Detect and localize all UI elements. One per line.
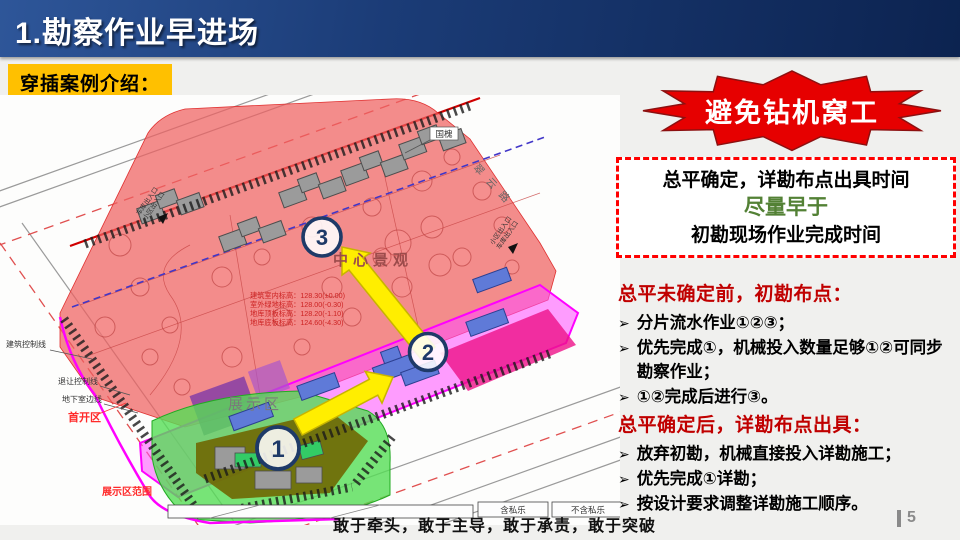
- display-area-label: 展示区: [228, 396, 282, 413]
- section2-bullet-1-text: 放弃初勘，机械直接投入详勘施工；: [637, 442, 901, 466]
- footer-slogan: 敢于牵头，敢于主导，敢于承责，敢于突破: [333, 512, 656, 536]
- svg-text:室外绿地标高：128.00(-0.30): 室外绿地标高：128.00(-0.30): [250, 300, 343, 309]
- svg-text:国槐: 国槐: [435, 129, 453, 139]
- section1-bullet-1-text: 分片流水作业①②③；: [637, 311, 794, 335]
- svg-text:1: 1: [271, 436, 284, 463]
- section2-heading: 总平确定后，详勘布点出具：: [618, 414, 958, 438]
- section1-bullet-1: ➢ 分片流水作业①②③；: [618, 311, 958, 335]
- section2-bullet-2-text: 优先完成①详勘；: [637, 467, 766, 491]
- page-number: 5: [897, 509, 916, 527]
- section-before-confirmation: 总平未确定前，初勘布点： ➢ 分片流水作业①②③； ➢ 优先完成①，机械投入数量…: [618, 283, 958, 410]
- section1-heading: 总平未确定前，初勘布点：: [618, 283, 958, 307]
- site-plan-map: 3 2 1 中心景观 展示区 首开区 展示区范围 建筑控制线 退让控制线 地下室…: [0, 95, 620, 525]
- bullet-arrow-icon: ➢: [618, 467, 630, 491]
- first-open-area-label: 首开区: [68, 410, 101, 424]
- bullet-arrow-icon: ➢: [618, 442, 630, 466]
- setback-control-label: 退让控制线: [58, 376, 98, 386]
- section1-bullet-3: ➢ ①②完成后进行③。: [618, 385, 958, 409]
- callout-line-2: 尽量早于: [621, 194, 951, 222]
- section2-bullet-3-text: 按设计要求调整详勘施工顺序。: [637, 492, 868, 516]
- page-divider: [897, 510, 901, 527]
- basement-outline-label: 地下室边线: [62, 394, 102, 404]
- section2-bullet-2: ➢ 优先完成①详勘；: [618, 467, 958, 491]
- elevation-notes: 建筑室内标高：128.30(±0.00) 室外绿地标高：128.00(-0.30…: [250, 291, 345, 327]
- avoid-idle-banner-label: 避免钻机窝工: [638, 66, 946, 154]
- section1-bullet-2: ➢ 优先完成①，机械投入数量足够①②可同步勘察作业；: [618, 336, 958, 384]
- marker-circle-3: 3: [303, 218, 341, 256]
- section2-bullet-1: ➢ 放弃初勘，机械直接投入详勘施工；: [618, 442, 958, 466]
- callout-line-1: 总平确定，详勘布点出具时间: [621, 167, 951, 194]
- callout-line-3: 初勘现场作业完成时间: [621, 222, 951, 249]
- slide-title: 1.勘察作业早进场: [15, 8, 259, 52]
- section1-bullet-3-text: ①②完成后进行③。: [637, 385, 778, 409]
- svg-text:地库顶板标高：128.20(-1.10): 地库顶板标高：128.20(-1.10): [250, 309, 343, 318]
- bullet-arrow-icon: ➢: [618, 336, 630, 384]
- marker-circle-2: 2: [410, 334, 447, 371]
- bullet-arrow-icon: ➢: [618, 311, 630, 335]
- timing-callout-box: 总平确定，详勘布点出具时间 尽量早于 初勘现场作业完成时间: [616, 157, 956, 258]
- slide-header-bar: 1.勘察作业早进场: [0, 0, 960, 57]
- avoid-idle-banner: 避免钻机窝工: [638, 66, 946, 154]
- section-after-confirmation: 总平确定后，详勘布点出具： ➢ 放弃初勘，机械直接投入详勘施工； ➢ 优先完成①…: [618, 414, 958, 517]
- marker-circle-1: 1: [257, 427, 299, 469]
- tree-callout: 国槐: [430, 127, 458, 140]
- section1-bullet-2-text: 优先完成①，机械投入数量足够①②可同步勘察作业；: [637, 336, 958, 384]
- svg-text:建筑室内标高：128.30(±0.00): 建筑室内标高：128.30(±0.00): [250, 291, 345, 300]
- svg-text:3: 3: [316, 225, 328, 250]
- page-number-value: 5: [907, 509, 916, 527]
- svg-text:2: 2: [422, 340, 434, 365]
- svg-text:地库底板标高：124.60(-4.30): 地库底板标高：124.60(-4.30): [250, 318, 343, 327]
- bullet-arrow-icon: ➢: [618, 385, 630, 409]
- display-range-label: 展示区范围: [102, 485, 152, 498]
- center-landscape-label: 中心景观: [333, 251, 413, 269]
- building-control-label: 建筑控制线: [6, 339, 46, 349]
